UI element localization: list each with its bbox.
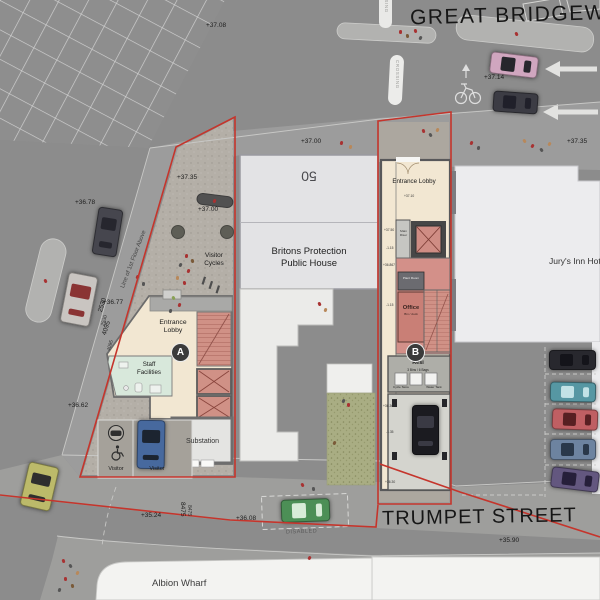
- level-label: +36.08: [236, 515, 256, 522]
- site-b-boundary: [378, 112, 451, 504]
- level-label: +35.24: [141, 512, 161, 519]
- level-label-small: +36.367: [383, 404, 395, 408]
- site-plan: GREAT BRIDGEWATER TRUMPET STREET Albion …: [0, 0, 600, 600]
- key-marker-b: B: [406, 343, 425, 362]
- street-boundary-east: [380, 464, 600, 537]
- level-label: 8475: [179, 502, 186, 516]
- street-boundary-west: [0, 495, 378, 527]
- level-label: +35.90: [499, 537, 519, 544]
- level-label: +36.62: [68, 402, 88, 409]
- level-label-small: +37.10: [404, 194, 414, 198]
- level-label-small: -1.35: [386, 430, 394, 434]
- level-label: +37.00: [301, 138, 321, 145]
- level-label: +37.00: [198, 206, 218, 213]
- level-label-small: +36.867: [383, 263, 395, 267]
- level-label: +37.35: [567, 138, 587, 145]
- level-label-small: -1.15: [386, 303, 394, 307]
- level-label: +37.08: [206, 22, 226, 29]
- level-label-small: +36.30: [385, 480, 395, 484]
- level-label-small: -1.15: [386, 246, 394, 250]
- level-label: +36.78: [75, 199, 95, 206]
- key-marker-a: A: [171, 343, 190, 362]
- site-boundaries: [0, 0, 600, 600]
- level-label: +37.35: [177, 174, 197, 181]
- level-label: +37.14: [484, 74, 504, 81]
- level-label-small: +37.50: [384, 228, 394, 232]
